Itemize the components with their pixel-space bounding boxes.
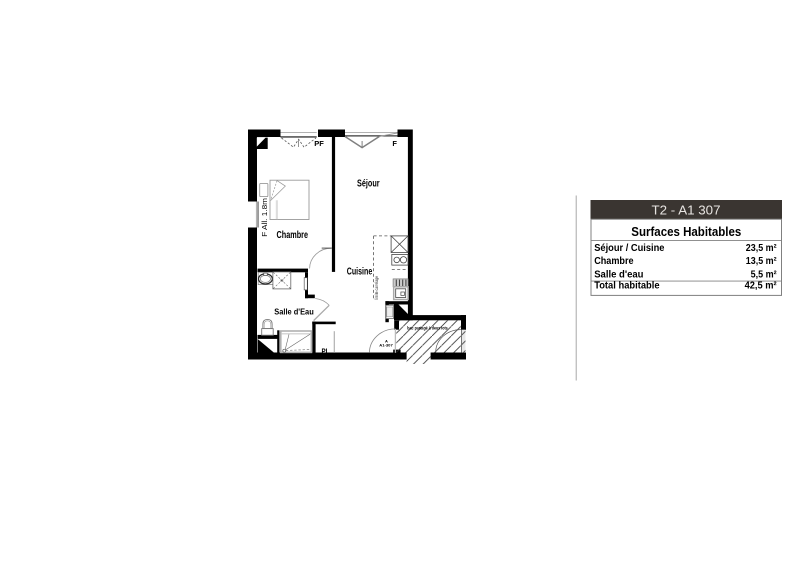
svg-text:Cuisine: Cuisine: [347, 267, 373, 278]
svg-text:42,5 m²: 42,5 m²: [745, 281, 778, 292]
svg-text:F: F: [392, 139, 397, 148]
svg-text:PL: PL: [322, 347, 330, 356]
svg-text:sc: sc: [280, 279, 284, 283]
svg-text:Chambre: Chambre: [277, 230, 309, 241]
svg-text:Salle d'eau: Salle d'eau: [594, 269, 643, 280]
svg-text:Séjour / Cuisine: Séjour / Cuisine: [594, 243, 665, 254]
svg-text:PF: PF: [314, 139, 324, 148]
svg-text:Total habitable: Total habitable: [594, 281, 660, 292]
svg-text:T2 - A1 307: T2 - A1 307: [652, 202, 721, 217]
svg-text:F All. 1.8m: F All. 1.8m: [260, 198, 269, 237]
svg-text:Séjour: Séjour: [357, 179, 380, 190]
svg-text:A: A: [385, 338, 388, 343]
svg-text:bac partagé à deux lots: bac partagé à deux lots: [407, 325, 448, 330]
svg-text:A1-307: A1-307: [379, 344, 393, 348]
svg-text:23,5 m²: 23,5 m²: [746, 243, 777, 254]
svg-text:Salle d'Eau: Salle d'Eau: [274, 307, 314, 317]
svg-text:5,5 m²: 5,5 m²: [751, 269, 778, 280]
svg-text:Surfaces Habitables: Surfaces Habitables: [631, 225, 741, 239]
svg-text:13,5 m²: 13,5 m²: [746, 256, 777, 267]
svg-text:Chambre: Chambre: [594, 256, 634, 267]
svg-text:limite carrelage: limite carrelage: [374, 276, 379, 300]
